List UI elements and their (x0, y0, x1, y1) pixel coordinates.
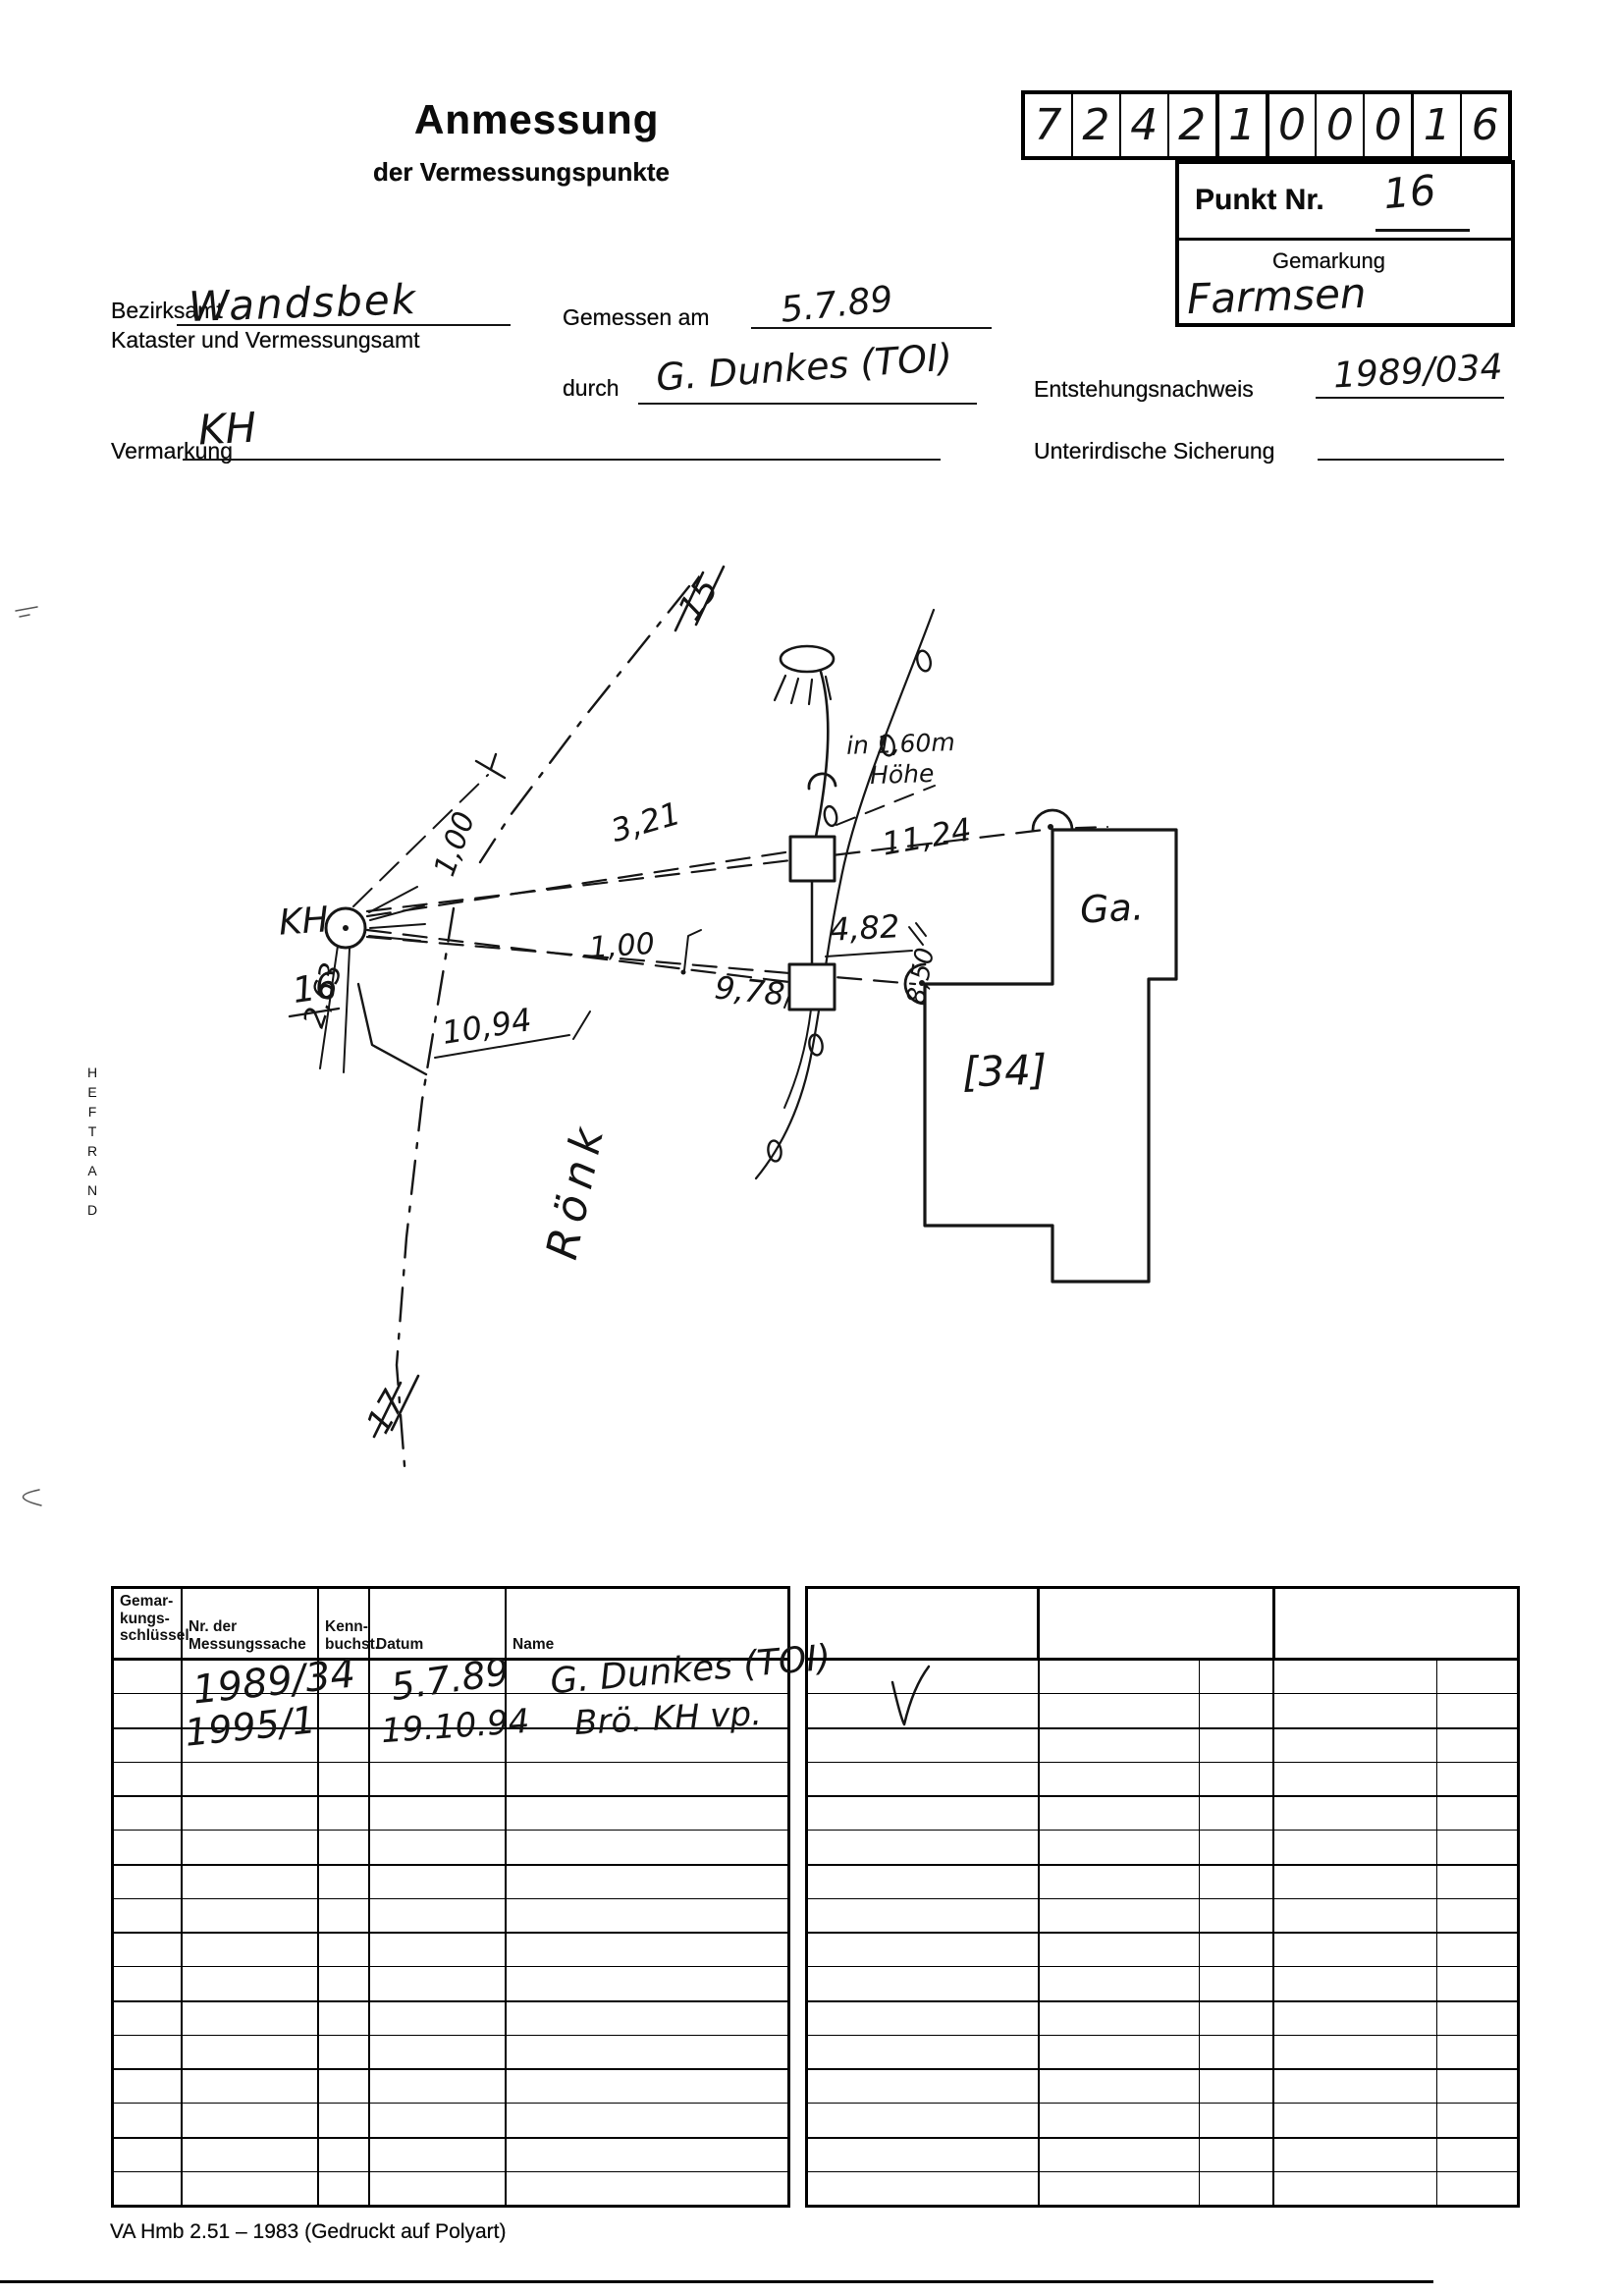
table-row (808, 1763, 1517, 1797)
fence-post (823, 805, 838, 827)
sketch-point-number: 16 (290, 965, 340, 1011)
table-row (808, 1831, 1517, 1865)
table-row (808, 1899, 1517, 1934)
lamp-pole (816, 672, 828, 837)
punkt-nr-value: 16 (1381, 166, 1438, 218)
code-digit: 1 (1414, 94, 1462, 156)
table-row (114, 2002, 787, 2036)
code-digit: 2 (1169, 94, 1219, 156)
durch-underline (638, 403, 977, 405)
fence-post (915, 649, 933, 673)
vermarkung-value: KH (197, 403, 258, 454)
code-digit: 2 (1073, 94, 1121, 156)
table-row (808, 2002, 1517, 2036)
table-row (114, 1831, 787, 1865)
table-row (114, 1866, 787, 1899)
point-number-box: Punkt Nr. 16 Gemarkung Farmsen (1175, 160, 1515, 327)
scan-edge-line (0, 2280, 1433, 2283)
code-digit: 7 (1025, 94, 1073, 156)
code-digit: 0 (1269, 94, 1318, 156)
point-code-boxes: 7 2 4 2 1 0 0 0 1 6 (1021, 90, 1512, 160)
code-digit: 1 (1219, 94, 1269, 156)
bezirksamt-underline (177, 324, 511, 326)
form-id-footer: VA Hmb 2.51 – 1983 (Gedruckt auf Polyart… (110, 2220, 506, 2244)
form-title: Anmessung (414, 96, 659, 143)
survey-point-center (343, 925, 349, 931)
table-row (114, 1967, 787, 2001)
table-row (114, 1934, 787, 1967)
boundary-line-lower (397, 908, 454, 1478)
table-row (808, 1967, 1517, 2001)
table-row (808, 2036, 1517, 2070)
punkt-nr-label: Punkt Nr. (1195, 184, 1324, 217)
table-row (808, 1797, 1517, 1831)
table-row (808, 2104, 1517, 2138)
table-row (114, 2139, 787, 2172)
measure-dashes (836, 786, 1107, 828)
code-digit: 6 (1462, 94, 1508, 156)
form-subtitle: der Vermessungspunkte (373, 157, 670, 188)
fence-post (808, 1034, 824, 1057)
table-row (114, 1899, 787, 1934)
table-row (808, 1661, 1517, 1694)
secondary-log-table (805, 1586, 1520, 2208)
bracket-1094 (358, 984, 426, 1074)
sketch-measure-978: 9,78 (713, 968, 786, 1012)
cabinet-box-lower (789, 964, 835, 1010)
secondary-log-body (808, 1661, 1517, 2205)
table-row (114, 1763, 787, 1797)
entstehungsnachweis-underline (1316, 397, 1504, 399)
col-gemarkungsschluessel: Gemar- kungs- schlüssel (114, 1589, 183, 1658)
table-row (808, 1934, 1517, 1967)
col-messungssache: Nr. der Messungssache (183, 1589, 319, 1658)
sketch-hoehe-line2: Höhe (870, 759, 935, 790)
corner-point (1048, 824, 1053, 830)
t-mark (476, 754, 505, 778)
margin-curve-mark (23, 1490, 41, 1505)
punkt-nr-underline (1375, 229, 1470, 232)
heftrand-label: HEFTRAND (84, 1065, 100, 1222)
table-row (114, 2104, 787, 2138)
arrow-850 (909, 923, 926, 945)
durch-label: durch (563, 375, 620, 402)
flag-dot (681, 970, 686, 975)
sketch-house-34-label: [34] (961, 1046, 1048, 1097)
table-row (114, 2036, 787, 2070)
entstehungsnachweis-label: Entstehungsnachweis (1034, 376, 1254, 403)
table-row (114, 2070, 787, 2104)
bezirksamt-value: Wandsbek (188, 275, 418, 331)
table-row (808, 2070, 1517, 2104)
sketch-point-name: KH (278, 900, 330, 943)
sicherung-underline (1318, 459, 1504, 461)
gemessen-underline (751, 327, 992, 329)
table-row (808, 2139, 1517, 2172)
table-row (808, 1694, 1517, 1728)
margin-mark (16, 607, 37, 617)
vermarkung-underline (183, 459, 941, 461)
table-row (808, 2172, 1517, 2205)
code-digit: 0 (1365, 94, 1414, 156)
scanned-survey-form: Anmessung der Vermessungspunkte 7 2 4 2 … (0, 0, 1618, 2296)
col-datum: Datum (370, 1589, 507, 1658)
sketch-measure-100-horizontal: 1,00 (588, 927, 656, 966)
table-row (808, 1729, 1517, 1763)
fence-arc (809, 774, 836, 789)
kataster-label: Kataster und Vermessungsamt (111, 327, 420, 354)
underline-482 (826, 951, 912, 957)
cabinet-tail (784, 1010, 811, 1108)
sketch-hoehe-line1: in 1,60m (846, 728, 956, 760)
lamp-icon (781, 646, 834, 672)
street-curve (756, 610, 934, 1178)
secondary-log-header (808, 1589, 1517, 1661)
code-digit: 4 (1121, 94, 1169, 156)
table-row (114, 1797, 787, 1831)
gemarkung-value: Farmsen (1186, 269, 1367, 323)
code-digit: 0 (1317, 94, 1365, 156)
sketch-measure-482: 4,82 (829, 907, 900, 949)
table-row (808, 1866, 1517, 1899)
sketch-garage-label: Ga. (1079, 885, 1145, 931)
col-kennbuchst: Kenn- buchst. (319, 1589, 370, 1658)
unterirdische-sicherung-label: Unterirdische Sicherung (1034, 438, 1274, 465)
cabinet-box-upper (790, 837, 835, 881)
table-row (114, 2172, 787, 2205)
gemessen-am-label: Gemessen am (563, 304, 710, 331)
